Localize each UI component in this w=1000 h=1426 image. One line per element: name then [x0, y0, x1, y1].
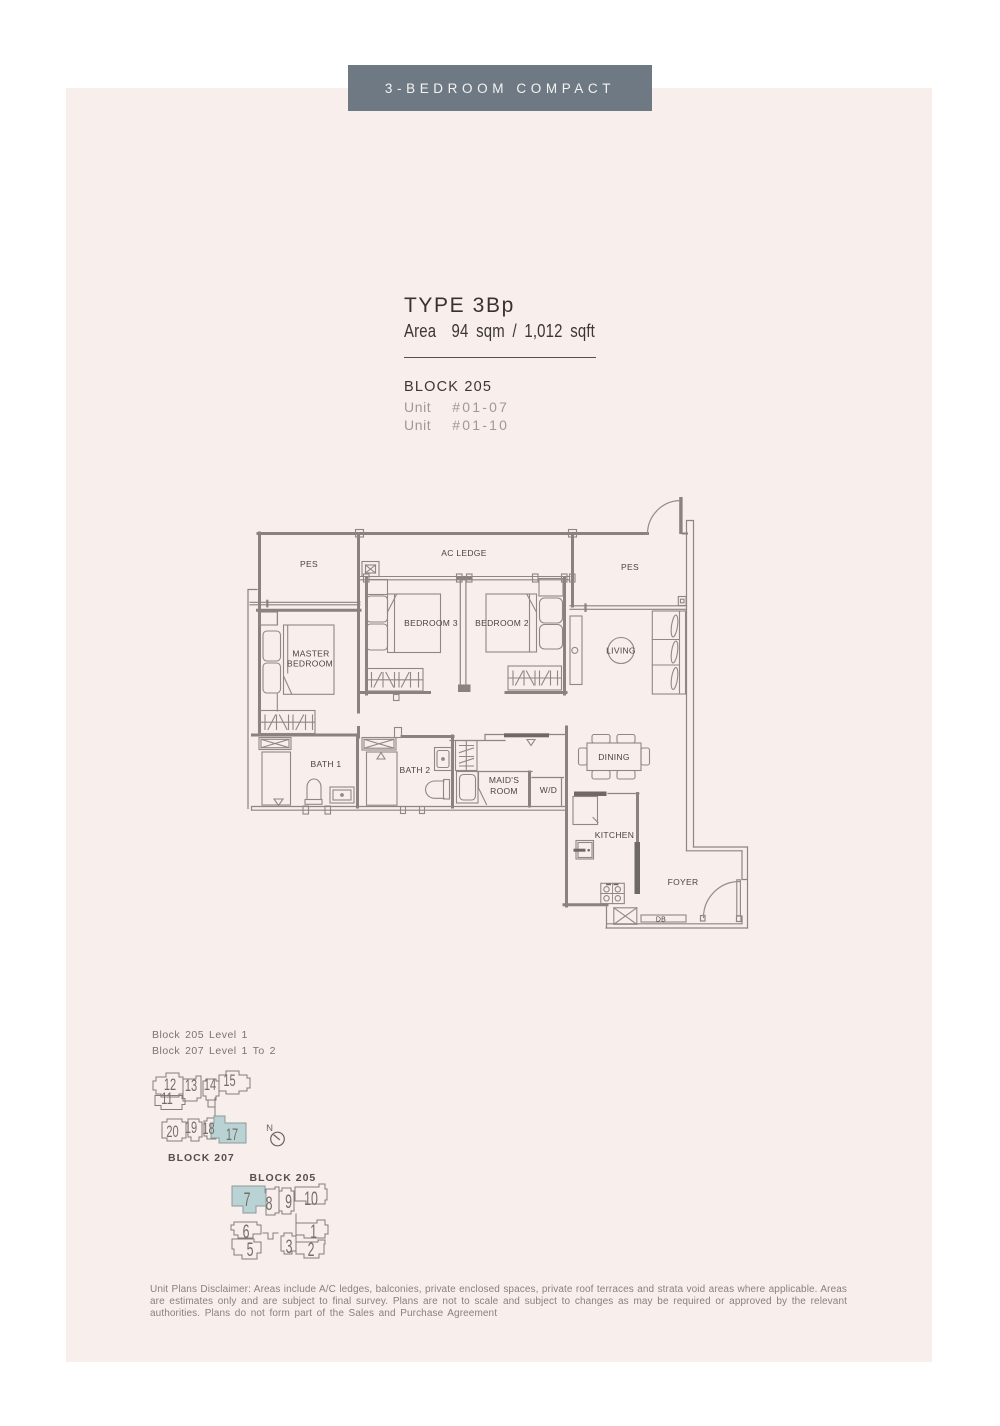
svg-text:DB: DB	[656, 916, 666, 923]
svg-text:14: 14	[204, 1076, 216, 1095]
svg-text:7: 7	[244, 1189, 251, 1210]
svg-text:20: 20	[166, 1123, 178, 1142]
svg-text:W/D: W/D	[540, 785, 557, 795]
svg-text:3: 3	[286, 1236, 293, 1257]
svg-text:BATH 1: BATH 1	[311, 759, 342, 769]
svg-text:N: N	[266, 1123, 273, 1134]
svg-text:BEDROOM 2: BEDROOM 2	[475, 618, 529, 628]
svg-text:PES: PES	[300, 559, 318, 569]
svg-text:BEDROOM: BEDROOM	[287, 659, 333, 669]
svg-text:LIVING: LIVING	[606, 646, 636, 656]
svg-text:13: 13	[185, 1077, 197, 1096]
svg-text:10: 10	[304, 1188, 318, 1209]
svg-text:BEDROOM 3: BEDROOM 3	[404, 618, 458, 628]
svg-text:MAID'S: MAID'S	[489, 775, 519, 785]
svg-text:AC LEDGE: AC LEDGE	[441, 548, 486, 558]
svg-text:PES: PES	[621, 562, 639, 572]
svg-text:FOYER: FOYER	[668, 877, 699, 887]
svg-text:MASTER: MASTER	[292, 649, 329, 659]
svg-text:17: 17	[226, 1126, 238, 1145]
svg-text:KITCHEN: KITCHEN	[595, 830, 634, 840]
svg-text:BATH 2: BATH 2	[400, 765, 431, 775]
svg-text:5: 5	[247, 1239, 254, 1260]
svg-text:8: 8	[266, 1193, 273, 1214]
svg-text:19: 19	[185, 1119, 197, 1138]
svg-text:11: 11	[161, 1090, 172, 1109]
svg-text:15: 15	[223, 1072, 235, 1091]
svg-text:9: 9	[285, 1191, 292, 1212]
svg-text:2: 2	[308, 1239, 315, 1260]
svg-text:DINING: DINING	[598, 752, 630, 762]
svg-text:18: 18	[202, 1120, 214, 1139]
svg-text:ROOM: ROOM	[490, 786, 518, 796]
